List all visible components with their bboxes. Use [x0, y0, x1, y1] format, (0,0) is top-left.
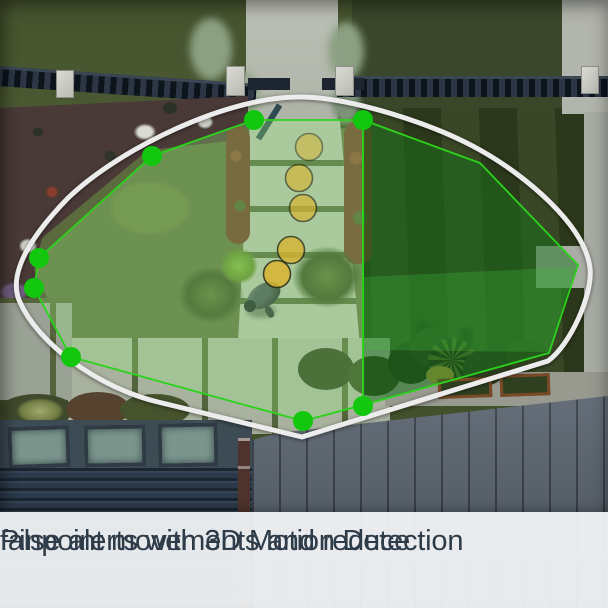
motion-trail-dot	[264, 261, 291, 288]
zone-vertex-dot	[353, 396, 373, 416]
zone-vertex-dot	[293, 411, 313, 431]
motion-trail-dot	[278, 237, 305, 264]
motion-zone-area	[34, 120, 363, 421]
motion-trail-dot	[286, 165, 313, 192]
zone-vertex-dot	[142, 146, 162, 166]
zone-vertex-dot	[61, 347, 81, 367]
motion-trail-dot	[296, 134, 323, 161]
zone-vertex-dot	[244, 110, 264, 130]
zone-vertex-dot	[29, 248, 49, 268]
caption-panel: Pinpoint movements and reduce false aler…	[0, 512, 608, 602]
caption-footer-strip	[0, 602, 608, 608]
detection-zone-highlight	[364, 267, 575, 352]
zone-vertex-dot	[353, 110, 373, 130]
product-feature-image: Pinpoint movements and reduce false aler…	[0, 0, 608, 608]
zone-vertex-dot	[24, 278, 44, 298]
motion-trail-dot	[290, 195, 317, 222]
caption-line-2: false alerts with 3D Motion Detection	[0, 524, 463, 558]
